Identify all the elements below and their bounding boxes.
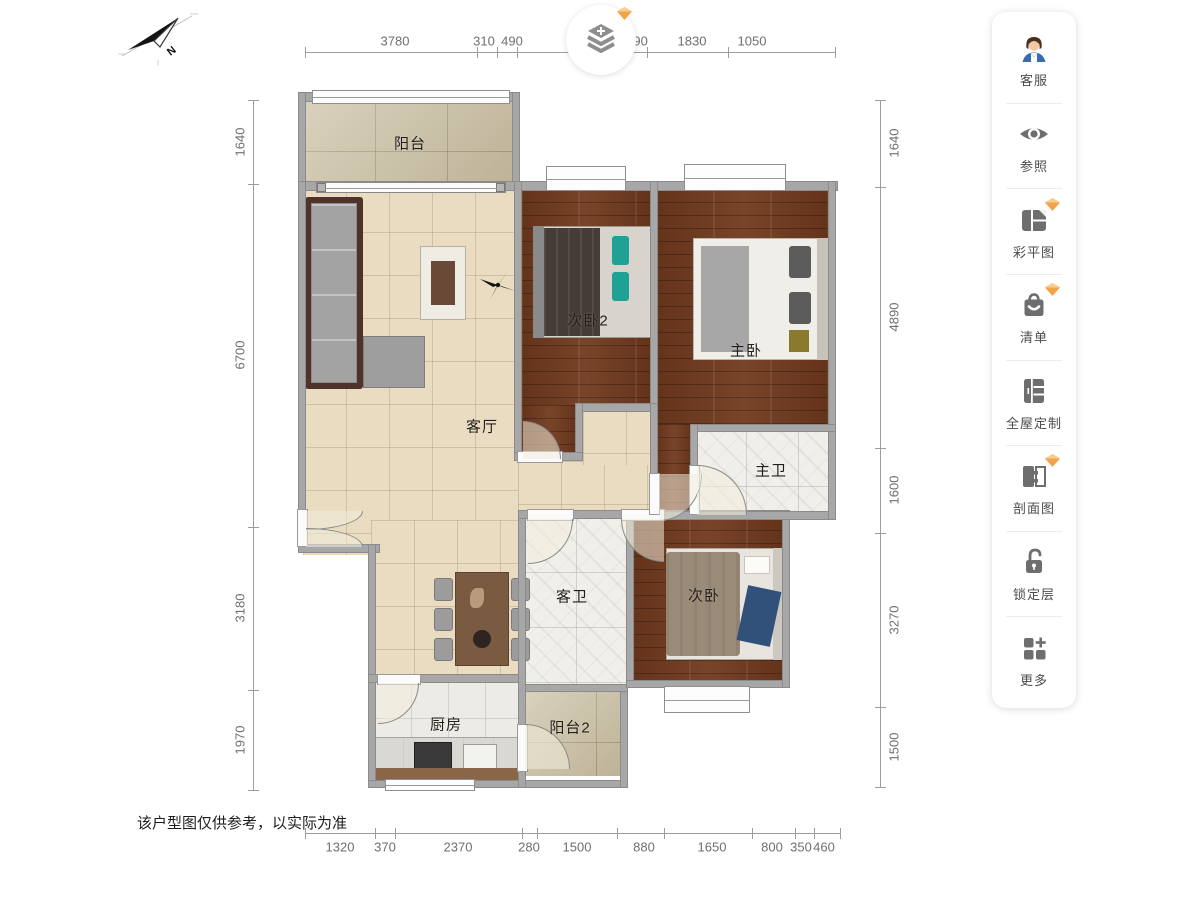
dimension-tick [752,828,753,839]
window [312,90,510,104]
wall [650,403,658,475]
room-label-guest-bath: 客卫 [556,586,588,607]
dimension-tick [795,828,796,839]
dimension-tick [875,533,886,534]
room-label-bedroom2: 次卧2 [567,310,608,331]
unlock-icon [1018,546,1050,578]
dimension-tick [875,448,886,449]
divider [1006,103,1062,104]
dimension-label: 490 [501,34,523,49]
room-label-bedroom: 次卧 [688,585,720,606]
bed-headboard [817,238,828,360]
dimension-label: 1600 [887,476,902,505]
dimension-tick [617,828,618,839]
dimension-tick [248,184,259,185]
dining-table [455,572,509,666]
wall [418,674,520,683]
dimension-label: 2370 [444,840,473,855]
divider [1006,531,1062,532]
coffee-table-top [431,261,455,305]
sidebar-item-label: 锁定层 [1013,584,1055,603]
hallway-floor [583,410,657,465]
sofa-chaise [363,336,425,388]
sliding-door [316,182,506,193]
bed-runner [701,246,749,352]
dimension-tick [497,47,498,58]
dimension-tick [305,47,306,58]
dimension-tick [395,828,396,839]
dimension-label: 1970 [233,726,248,755]
dimension-label: 1640 [887,129,902,158]
sidebar-item-reference[interactable]: 参照 [992,117,1076,175]
eye-icon [1018,118,1050,150]
bench [789,330,809,352]
dining-chair [434,578,453,601]
disclaimer-text: 该户型图仅供参考，以实际为准 [137,812,347,833]
premium-diamond-icon [1045,283,1060,296]
dimension-tick [248,790,259,791]
dimension-label: 310 [473,34,495,49]
dimension-tick [875,787,886,788]
wall [620,684,628,788]
dimension-line-left [253,100,254,790]
sidebar-item-section-view[interactable]: 剖面图 [992,459,1076,517]
bay-window [664,686,750,713]
dimension-tick [248,527,259,528]
wall [298,181,306,510]
dimension-tick [728,47,729,58]
divider [1006,274,1062,275]
room-label-master-bath: 主卫 [755,460,787,481]
layers-button[interactable] [566,5,636,75]
bed-pillow [612,272,629,301]
wall [782,510,790,688]
sidebar-item-customer-service[interactable]: 客服 [992,31,1076,89]
dimension-label: 1500 [563,840,592,855]
dimension-label: 800 [761,840,783,855]
divider [1006,445,1062,446]
layers-icon [581,20,621,60]
dimension-line-bottom [305,833,840,834]
dimension-tick [537,828,538,839]
dimension-label: 3180 [233,594,248,623]
divider [1006,616,1062,617]
dimension-label: 880 [633,840,655,855]
sidebar-item-more[interactable]: 更多 [992,631,1076,689]
dimension-label: 3270 [887,606,902,635]
dimension-label: 1320 [326,840,355,855]
bed-headboard [533,226,544,338]
sidebar-item-label: 清单 [1020,327,1048,346]
window [385,779,475,791]
premium-diamond-icon [617,7,632,20]
dining-chair [434,638,453,661]
room-label-balcony2: 阳台2 [549,717,590,738]
dimension-label: 370 [374,840,396,855]
sidebar-item-label: 彩平图 [1013,242,1055,261]
dimension-label: 4890 [887,303,902,332]
sidebar-item-label: 参照 [1020,156,1048,175]
divider [1006,188,1062,189]
bay-window [684,164,786,191]
bed-pillow [789,246,811,278]
dimension-tick [835,47,836,58]
wall [690,424,698,467]
room-label-master-bedroom: 主卧 [730,340,762,361]
dimension-label: 1830 [678,34,707,49]
dimension-label: 3780 [381,34,410,49]
sink [463,744,497,770]
dining-plate [473,630,491,648]
dimension-label: 1650 [698,840,727,855]
sidebar-item-label: 客服 [1020,70,1048,89]
customer-service-icon [1018,32,1050,64]
wall [514,181,522,457]
sidebar-item-lock-layer[interactable]: 锁定层 [992,545,1076,603]
wall [575,403,657,412]
room-label-balcony: 阳台 [394,133,426,154]
wall [368,544,376,788]
dimension-label: 1050 [738,34,767,49]
bay-window [546,166,626,191]
bed-pillow [744,556,770,574]
sidebar-item-label: 更多 [1020,670,1048,689]
wall [512,92,520,189]
room-label-living-room: 客厅 [466,416,498,437]
sidebar-item-label: 全屋定制 [1006,413,1062,432]
dimension-tick [814,828,815,839]
dimension-label: 1640 [233,128,248,157]
dimension-tick [840,828,841,839]
compass-north-icon: N [116,4,202,68]
compass-n-letter: N [165,44,179,58]
dimension-tick [647,47,648,58]
sidebar-item-custom-furniture[interactable]: 全屋定制 [992,374,1076,432]
wall [298,92,306,189]
wall [518,684,628,692]
more-grid-icon [1018,632,1050,664]
dimension-label: 1500 [887,733,902,762]
dimension-tick [875,707,886,708]
sidebar-item-label: 剖面图 [1013,498,1055,517]
wall [828,181,836,520]
dining-flower [470,588,484,608]
dimension-tick [875,100,886,101]
wall [690,424,836,432]
toolbar-sidebar: 客服 参照 彩平图 [992,12,1076,708]
dimension-label: 350 [790,840,812,855]
wall [650,181,658,411]
sofa-cushions [311,203,357,383]
wardrobe-icon [1018,375,1050,407]
dimension-line-right [880,100,881,787]
sidebar-item-color-plan[interactable]: 彩平图 [992,203,1076,261]
dimension-tick [375,828,376,839]
dimension-tick [248,100,259,101]
dimension-tick [522,828,523,839]
ceiling-fan-icon [478,268,518,302]
dimension-tick [875,187,886,188]
dimension-tick [248,690,259,691]
dining-chair [434,608,453,631]
bed-pillow [612,236,629,265]
hallway-floor [518,461,657,514]
bed-pillow [789,292,811,324]
dimension-tick [517,47,518,58]
dimension-label: 460 [813,840,835,855]
dimension-label: 6700 [233,341,248,370]
divider [1006,360,1062,361]
dimension-label: 280 [518,840,540,855]
premium-diamond-icon [1045,454,1060,467]
premium-diamond-icon [1045,198,1060,211]
sidebar-item-list[interactable]: 清单 [992,288,1076,346]
dimension-tick [664,828,665,839]
room-label-kitchen: 厨房 [430,714,462,735]
dimension-tick [477,47,478,58]
